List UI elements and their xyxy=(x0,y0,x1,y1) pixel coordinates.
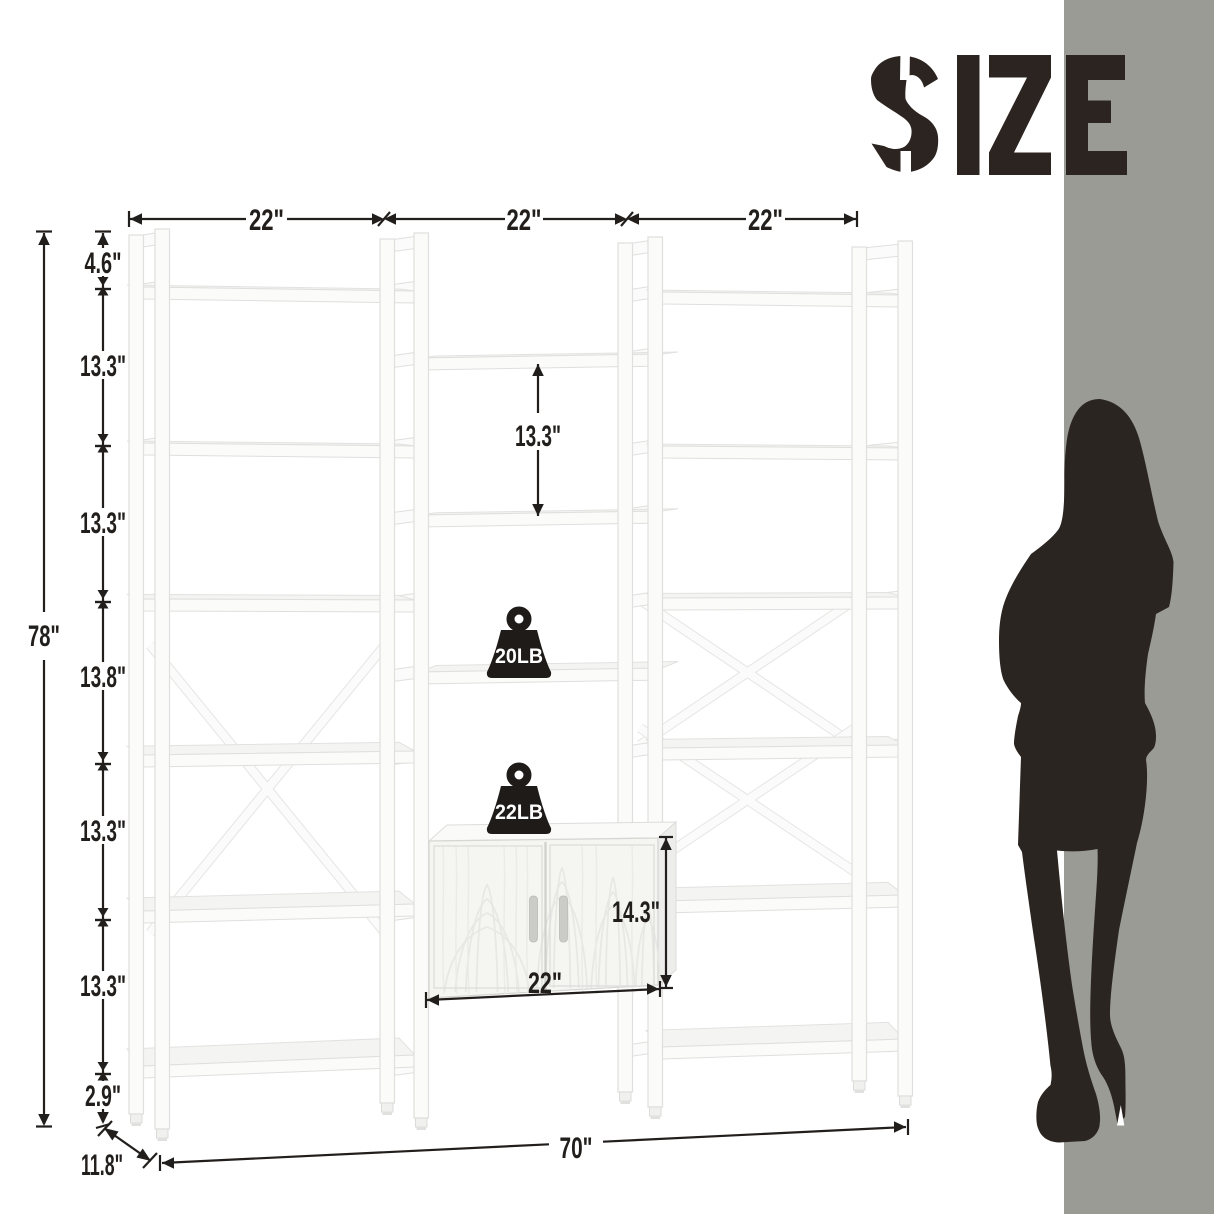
svg-text:22LB: 22LB xyxy=(495,801,543,824)
svg-text:13.3": 13.3" xyxy=(80,970,126,1003)
svg-text:11.8": 11.8" xyxy=(81,1149,123,1182)
svg-text:4.6": 4.6" xyxy=(85,247,122,280)
svg-text:13.3": 13.3" xyxy=(515,420,561,453)
svg-text:70": 70" xyxy=(560,1132,593,1165)
svg-text:22": 22" xyxy=(528,967,562,1000)
svg-text:22": 22" xyxy=(507,204,542,237)
svg-text:22": 22" xyxy=(748,204,783,237)
svg-text:14.3": 14.3" xyxy=(612,896,660,929)
svg-text:20LB: 20LB xyxy=(495,645,543,668)
svg-text:13.8": 13.8" xyxy=(80,661,126,694)
svg-text:78": 78" xyxy=(28,620,60,653)
svg-text:13.3": 13.3" xyxy=(80,815,126,848)
svg-text:2.9": 2.9" xyxy=(85,1080,121,1113)
svg-text:22": 22" xyxy=(249,204,284,237)
svg-text:13.3": 13.3" xyxy=(80,507,126,540)
svg-text:13.3": 13.3" xyxy=(80,350,126,383)
